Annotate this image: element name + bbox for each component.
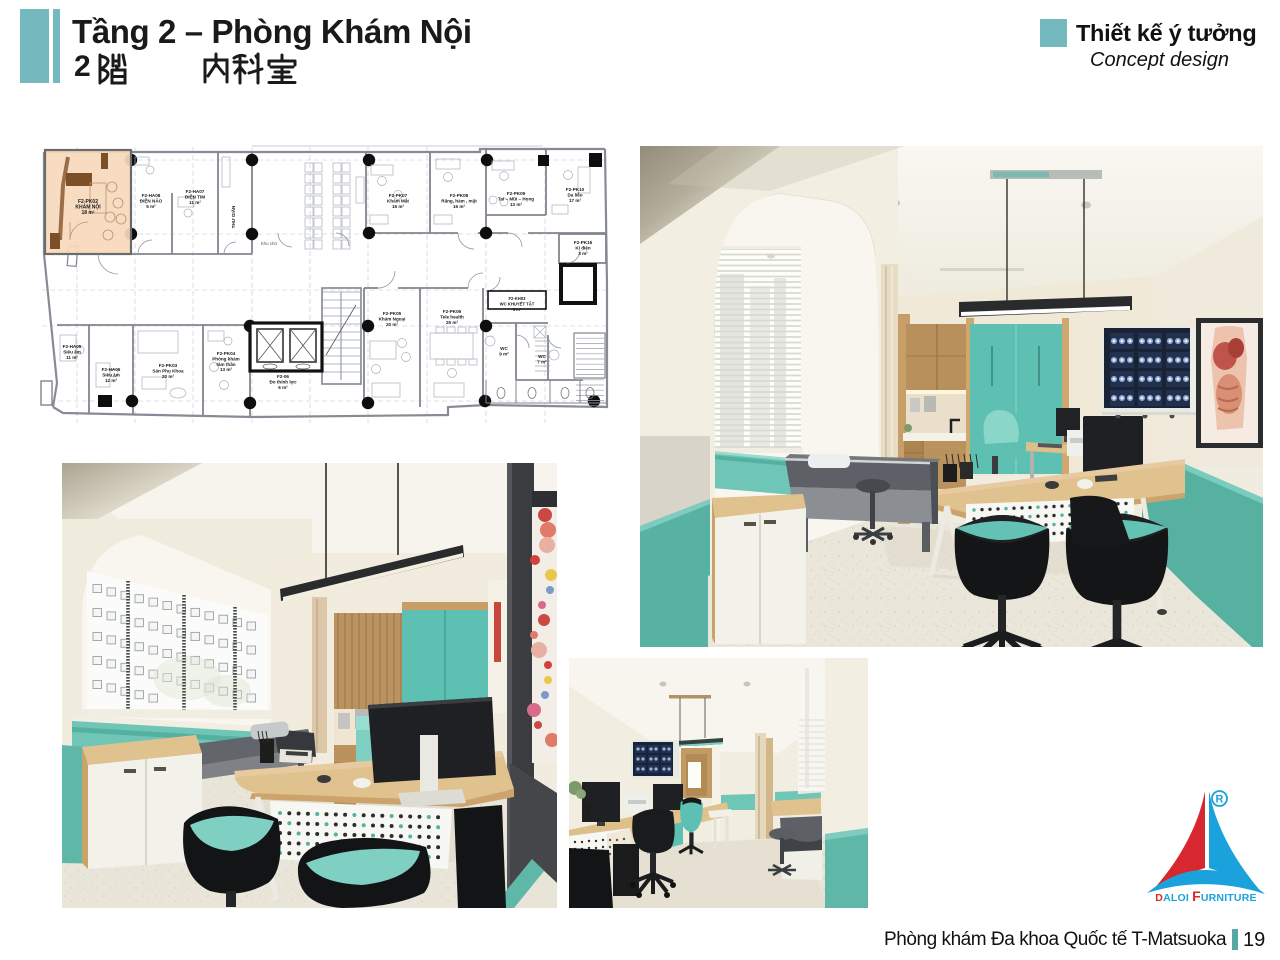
svg-text:F2-PK08: F2-PK08 bbox=[450, 193, 469, 198]
svg-text:11 m²: 11 m² bbox=[66, 355, 78, 360]
svg-text:F2-06: F2-06 bbox=[277, 374, 289, 379]
svg-text:tâm thần: tâm thần bbox=[216, 362, 235, 367]
svg-text:Khám Ngoại: Khám Ngoại bbox=[379, 316, 406, 321]
svg-text:9 m²: 9 m² bbox=[499, 351, 509, 356]
svg-text:F2-PK04: F2-PK04 bbox=[217, 351, 236, 356]
svg-text:F2-PK06: F2-PK06 bbox=[443, 309, 462, 314]
svg-text:Kí điện: Kí điện bbox=[575, 245, 591, 250]
svg-text:F2-PK05: F2-PK05 bbox=[383, 311, 402, 316]
svg-text:Da liễu: Da liễu bbox=[567, 191, 582, 197]
svg-text:Đo thính lực: Đo thính lực bbox=[269, 379, 297, 384]
svg-text:16 m²: 16 m² bbox=[453, 204, 465, 209]
svg-text:5 m²: 5 m² bbox=[146, 204, 156, 209]
svg-text:F2-PK07: F2-PK07 bbox=[389, 193, 408, 198]
svg-text:F2-PK09: F2-PK09 bbox=[507, 191, 526, 196]
svg-text:Tai – Mũi – Họng: Tai – Mũi – Họng bbox=[498, 196, 534, 201]
svg-text:11 m²: 11 m² bbox=[189, 200, 201, 205]
svg-text:25 m²: 25 m² bbox=[446, 320, 458, 325]
svg-text:THƯ GIÃN: THƯ GIÃN bbox=[230, 205, 236, 228]
svg-text:16 m²: 16 m² bbox=[392, 204, 404, 209]
svg-text:F2-PK16: F2-PK16 bbox=[574, 240, 593, 245]
svg-text:13 m²: 13 m² bbox=[220, 367, 232, 372]
svg-text:R: R bbox=[1216, 794, 1224, 806]
svg-text:F2-HA07: F2-HA07 bbox=[186, 189, 205, 194]
svg-text:20 m²: 20 m² bbox=[162, 374, 174, 379]
svg-text:ĐIỆN NÃO: ĐIỆN NÃO bbox=[140, 196, 163, 203]
svg-text:17 m²: 17 m² bbox=[569, 198, 581, 203]
svg-text:Sản Phụ Khoa: Sản Phụ Khoa bbox=[152, 368, 184, 373]
svg-text:WC: WC bbox=[538, 354, 546, 359]
svg-text:Tele health: Tele health bbox=[440, 314, 464, 319]
svg-text:DALOI FURNITURE: DALOI FURNITURE bbox=[1155, 888, 1256, 904]
svg-text:F2-KH03: F2-KH03 bbox=[509, 296, 527, 301]
svg-text:3 m²: 3 m² bbox=[578, 251, 588, 256]
svg-text:7 m²: 7 m² bbox=[537, 359, 547, 364]
svg-text:WC: WC bbox=[500, 346, 508, 351]
svg-text:ĐIỆN TIM: ĐIỆN TIM bbox=[185, 192, 205, 199]
svg-text:WC KHUYẾT TẬT: WC KHUYẾT TẬT bbox=[500, 301, 535, 306]
svg-text:F2-HA06: F2-HA06 bbox=[102, 367, 121, 372]
svg-text:Khu chờ: Khu chờ bbox=[261, 241, 278, 246]
svg-text:F2-PK03: F2-PK03 bbox=[159, 363, 178, 368]
svg-text:Siêu âm: Siêu âm bbox=[63, 349, 81, 354]
svg-text:Siêu âm: Siêu âm bbox=[102, 372, 120, 377]
svg-text:13 m²: 13 m² bbox=[510, 202, 522, 207]
svg-text:18 m²: 18 m² bbox=[81, 210, 94, 216]
svg-text:6 m²: 6 m² bbox=[278, 385, 288, 390]
svg-text:F2-HA08: F2-HA08 bbox=[142, 193, 161, 198]
svg-text:F2-PK10: F2-PK10 bbox=[566, 187, 585, 192]
svg-text:20 m²: 20 m² bbox=[386, 322, 398, 327]
svg-text:Phòng khám: Phòng khám bbox=[212, 356, 240, 361]
svg-text:12 m²: 12 m² bbox=[105, 378, 117, 383]
svg-text:Răng, hàm , mặt: Răng, hàm , mặt bbox=[441, 198, 477, 203]
svg-text:F2-HA05: F2-HA05 bbox=[63, 344, 82, 349]
svg-text:Khám Mắt: Khám Mắt bbox=[387, 197, 409, 203]
